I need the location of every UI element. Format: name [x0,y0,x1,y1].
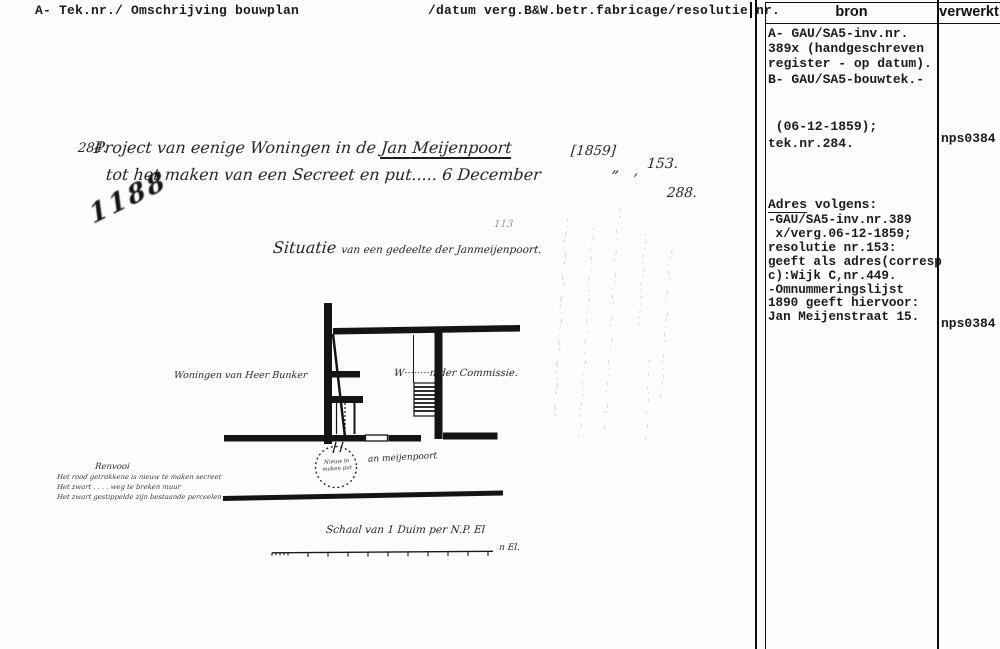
scale-end-label: n El. [499,543,521,553]
sketch-label-right-houses: W········n der Commissie. [394,368,519,379]
stairs-hatch [414,383,436,416]
adres-line: x/verg.06-12-1859; [768,228,942,242]
bron-date-line: tek.nr.284. [768,136,877,153]
wall-bottom-left [224,435,365,442]
legend-line: Het rood getrokkene is nieuw te maken se… [57,472,243,482]
adres-line: 1890 geeft hiervoor: [768,297,942,311]
verwerkt-column-header: verwerkt [938,4,1000,20]
wall-stub-lower [332,396,363,403]
bron-source-line: 389x (handgeschreven [768,41,932,56]
manuscript-line-1: Project van eenige Woningen in de Jan Me… [93,138,513,157]
sketch-walls [223,303,520,501]
adres-line: -Omnummeringslijst [768,284,942,298]
legend-line: Het zwart gestippelde zijn bestaande per… [57,492,243,502]
street-ground-line [223,491,503,502]
bron-source-line: register - op datum). [768,56,932,71]
wall-bottom-open-section [366,435,388,441]
bron-date-block: (06-12-1859); tek.nr.284. [768,119,877,152]
header-left-column-title: A- Tek.nr./ Omschrijving bouwplan [35,3,299,18]
circle-pointer-tick [333,442,336,453]
panel-header-bottom-rule [765,23,1000,25]
put-circle-annotation: Nieuw te maken put [318,458,357,474]
manuscript-second-number: 288. [666,185,697,201]
legend-line: Het zwart . . . . weg te breken muur [57,482,243,492]
adres-heading-underlined: Adres [768,197,807,213]
archive-card-scan: A- Tek.nr./ Omschrijving bouwplan /datum… [0,0,1000,649]
sketch-title: Situatie van een gedeelte der Janmeijenp… [272,238,542,257]
wall-bottom-right [443,433,498,440]
manuscript-comma: , [633,163,639,179]
verwerkt-stamp-2: nps0384 [941,316,996,331]
bron-column-header: bron [766,4,937,20]
manuscript-line-2: tot het maken van een Secreet en put....… [105,165,541,184]
scale-caption: Schaal van 1 Duim per N.P. El [325,524,485,536]
header-middle-column-title: /datum verg.B&W.betr.fabricage/resolutie… [428,3,780,18]
panel-outer-vertical-rule [755,0,757,649]
adres-heading-rest: volgens: [807,197,877,212]
legend-title: Renvooi [95,462,243,472]
adres-line: c):Wijk C,nr.449. [768,270,942,284]
wall-top-horizontal [333,325,520,335]
bleedthrough-writing [553,200,703,470]
sketch-label-left-houses: Woningen van Heer Bunker [174,370,308,381]
manuscript-ditto-mark: „ [611,158,620,176]
adres-line: resolutie nr.153: [768,242,942,256]
scale-bar [272,551,493,557]
bron-source-block: A- GAU/SA5-inv.nr. 389x (handgeschreven … [768,26,932,87]
sketch-title-rest: van een gedeelte der Janmeijenpoort. [341,244,542,256]
wall-vertical-main [324,303,332,444]
header-divider-tick [750,2,752,18]
adres-heading: Adres volgens: [768,197,877,212]
manuscript-street-name-underlined: Jan Meijenpoort [380,138,512,159]
manuscript-line1-text: Project van eenige Woningen in de [93,138,382,157]
bron-source-line: A- GAU/SA5-inv.nr. [768,26,932,41]
bron-left-vertical-rule [765,2,766,649]
pencil-scale-note: 113 [494,219,514,230]
sketch-title-first-word: Situatie [272,238,337,257]
manuscript-resolutie-number: 153. [646,156,679,172]
legend-block: Renvooi Het rood getrokkene is nieuw te … [57,462,242,503]
adres-line: -GAU/SA5-inv.nr.389 [768,214,942,228]
manuscript-year-bracket: [1859] [570,143,616,159]
adres-line: geeft als adres(corresp [768,256,942,270]
wall-bottom-mid [389,435,422,442]
wall-diagonal [333,334,345,437]
bron-date-line: (06-12-1859); [768,119,877,136]
wall-stub-upper [332,371,360,378]
adres-block: -GAU/SA5-inv.nr.389 x/verg.06-12-1859; r… [768,214,942,325]
bron-source-line: B- GAU/SA5-bouwtek.- [768,72,932,87]
verwerkt-stamp-1: nps0384 [941,131,996,146]
adres-line: Jan Meijenstraat 15. [768,311,942,325]
